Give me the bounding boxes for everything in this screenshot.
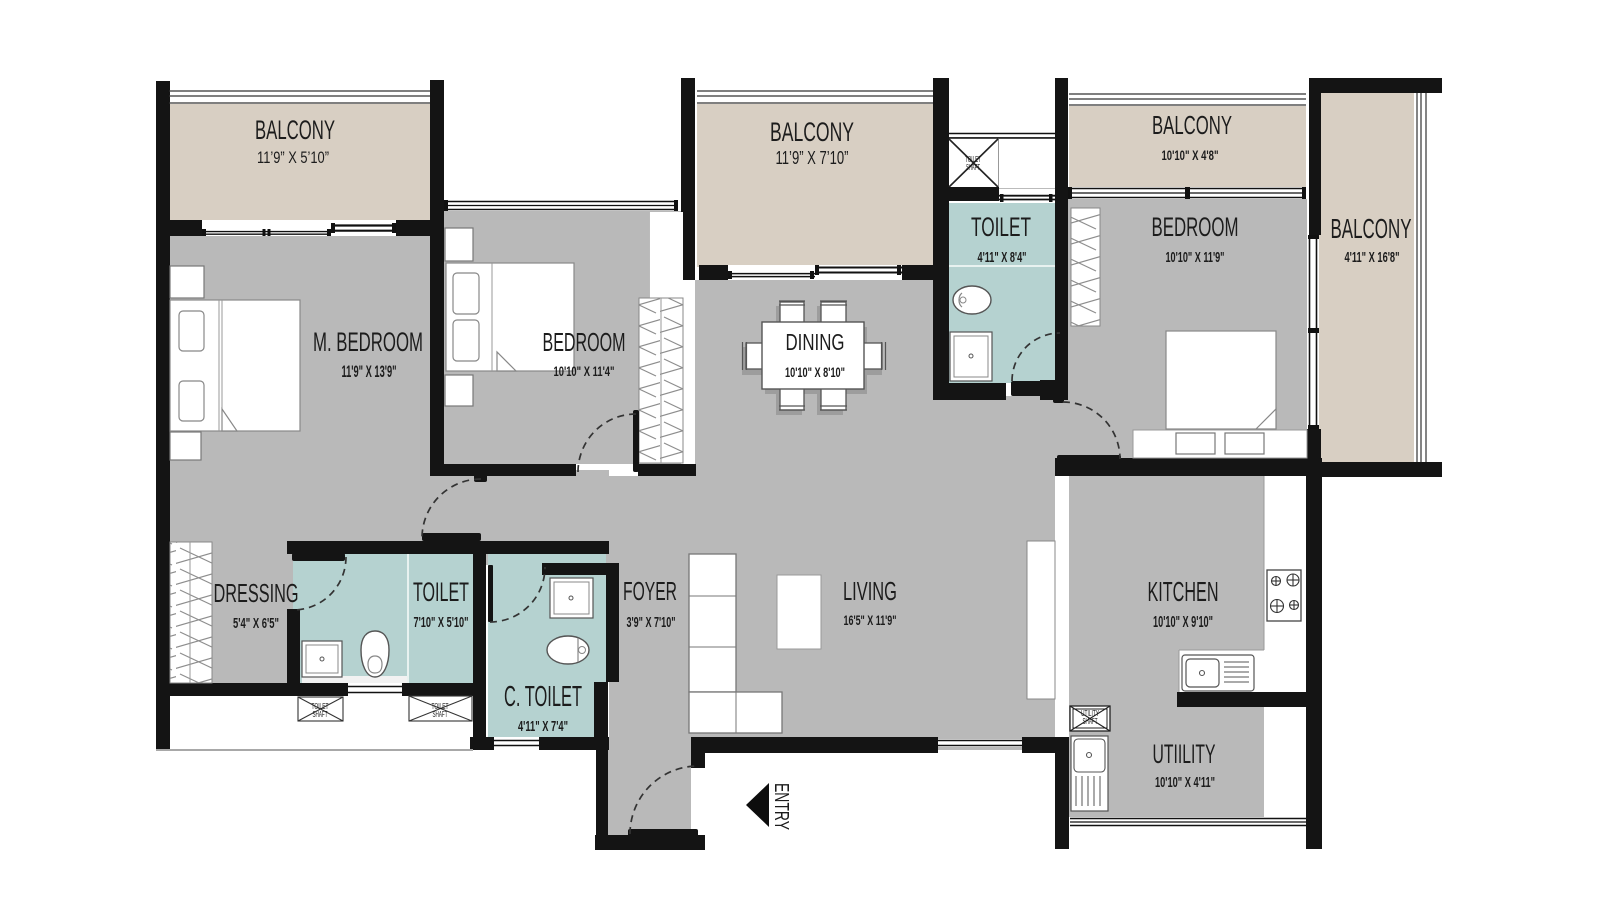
- svg-text:KITCHEN: KITCHEN: [1148, 576, 1219, 607]
- svg-text:TOILET: TOILET: [413, 577, 469, 607]
- svg-text:BEDROOM: BEDROOM: [1152, 212, 1239, 242]
- svg-text:M. BEDROOM: M. BEDROOM: [313, 327, 423, 357]
- svg-text:DINING: DINING: [786, 329, 845, 355]
- svg-text:3'9" X 7'10": 3'9" X 7'10": [627, 614, 676, 631]
- svg-text:10'10" X 11'9": 10'10" X 11'9": [1166, 249, 1225, 266]
- svg-text:SHAFT: SHAFT: [313, 710, 328, 719]
- svg-text:4'11" X 16'8": 4'11" X 16'8": [1345, 249, 1400, 266]
- svg-text:SHAFT: SHAFT: [966, 163, 980, 172]
- svg-text:10'10" X 4'8": 10'10" X 4'8": [1162, 147, 1219, 163]
- svg-text:BALCONY: BALCONY: [1152, 110, 1232, 140]
- svg-text:4'11" X 7'4": 4'11" X 7'4": [518, 719, 568, 735]
- svg-text:FOYER: FOYER: [623, 578, 677, 606]
- svg-text:TOILET: TOILET: [971, 212, 1031, 242]
- svg-text:7'10" X 5'10": 7'10" X 5'10": [414, 614, 469, 631]
- svg-text:10'10" X 8'10": 10'10" X 8'10": [785, 364, 845, 380]
- svg-text:DRESSING: DRESSING: [214, 580, 299, 608]
- svg-text:16'5" X 11'9": 16'5" X 11'9": [844, 612, 897, 628]
- svg-text:11’9” X 7’10”: 11’9” X 7’10”: [776, 148, 849, 168]
- svg-text:11’9” X 5’10”: 11’9” X 5’10”: [257, 148, 329, 167]
- svg-text:UTIILITY: UTIILITY: [1153, 739, 1216, 769]
- svg-text:11'9" X 13'9": 11'9" X 13'9": [342, 362, 397, 381]
- svg-text:LIVING: LIVING: [843, 578, 897, 606]
- svg-text:10'10" X 11'4": 10'10" X 11'4": [554, 364, 615, 379]
- svg-text:4'11" X 8'4": 4'11" X 8'4": [978, 249, 1027, 266]
- svg-text:5'4" X 6'5": 5'4" X 6'5": [233, 615, 279, 632]
- svg-text:SHAFT: SHAFT: [433, 710, 448, 719]
- svg-text:BALCONY: BALCONY: [1331, 213, 1412, 244]
- svg-text:10'10" X 4'11": 10'10" X 4'11": [1155, 775, 1215, 791]
- svg-text:ENTRY: ENTRY: [770, 783, 793, 830]
- svg-text:10'10" X 9'10": 10'10" X 9'10": [1153, 614, 1213, 631]
- svg-text:BALCONY: BALCONY: [770, 117, 854, 147]
- svg-text:BALCONY: BALCONY: [255, 115, 335, 145]
- svg-text:BEDROOM: BEDROOM: [543, 329, 626, 357]
- svg-text:C. TOILET: C. TOILET: [504, 681, 582, 713]
- svg-text:SHAFT: SHAFT: [1083, 717, 1098, 726]
